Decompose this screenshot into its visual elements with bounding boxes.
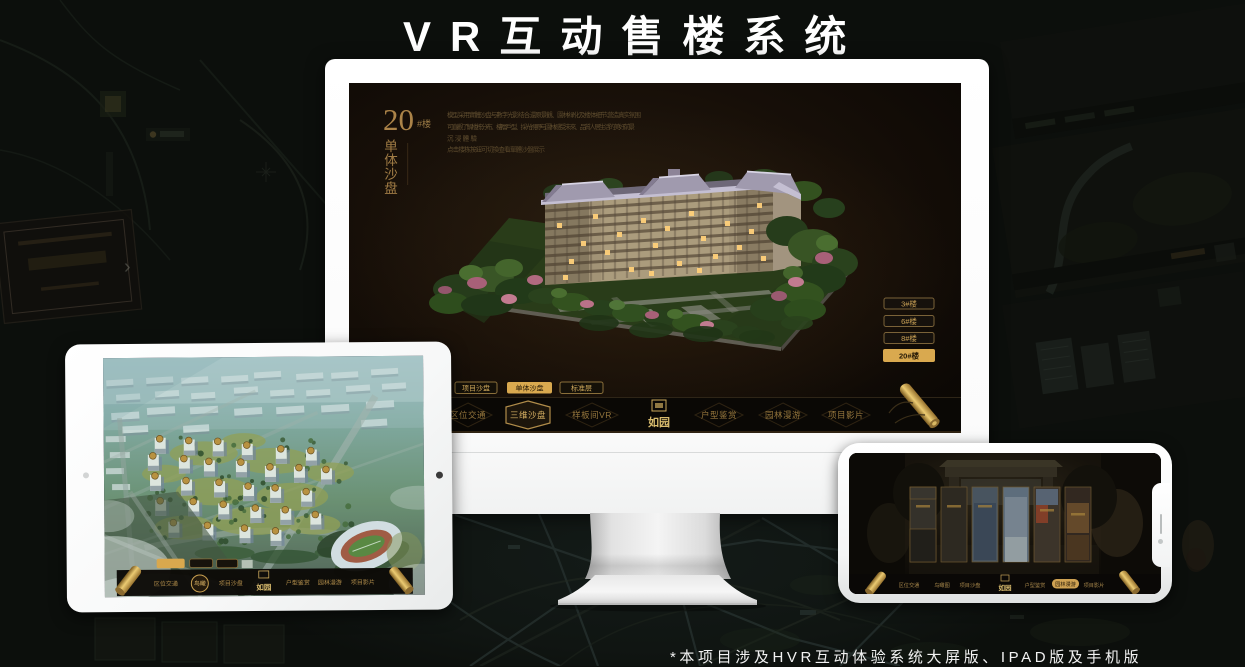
svg-text:如园: 如园	[256, 582, 272, 592]
svg-text:样板间VR: 样板间VR	[572, 410, 612, 420]
svg-text:鸟瞰: 鸟瞰	[194, 579, 206, 587]
svg-text:项目影片: 项目影片	[1084, 581, 1105, 589]
svg-text:项目沙盘: 项目沙盘	[462, 384, 490, 393]
svg-text:三维沙盘: 三维沙盘	[510, 410, 546, 420]
svg-text:3#楼: 3#楼	[901, 299, 917, 309]
svg-text:户型鉴赏: 户型鉴赏	[286, 579, 310, 587]
svg-text:6#楼: 6#楼	[901, 316, 917, 326]
svg-text:›: ›	[124, 256, 131, 278]
svg-text:户型鉴赏: 户型鉴赏	[1025, 581, 1046, 589]
svg-text:区位交通: 区位交通	[450, 410, 486, 420]
svg-text:项目影片: 项目影片	[828, 410, 864, 420]
svg-text:园林漫游: 园林漫游	[1055, 580, 1076, 588]
svg-text:园林漫游: 园林漫游	[318, 578, 342, 586]
svg-text:鸟瞰图: 鸟瞰图	[934, 581, 950, 589]
svg-text:项目影片: 项目影片	[351, 578, 375, 586]
svg-text:项目沙盘: 项目沙盘	[219, 579, 243, 587]
svg-text:单体沙盘: 单体沙盘	[516, 384, 544, 393]
svg-text:户型鉴赏: 户型鉴赏	[701, 410, 737, 420]
svg-text:8#楼: 8#楼	[901, 333, 917, 343]
svg-text:园林漫游: 园林漫游	[765, 410, 801, 420]
svg-text:标准层: 标准层	[571, 384, 592, 393]
svg-text:区位交通: 区位交通	[899, 581, 921, 589]
svg-text:区位交通: 区位交通	[154, 580, 178, 588]
svg-text:20#楼: 20#楼	[899, 351, 920, 361]
svg-text:如园: 如园	[648, 415, 670, 429]
svg-text:如园: 如园	[999, 583, 1013, 592]
svg-text:项目沙盘: 项目沙盘	[960, 581, 981, 589]
